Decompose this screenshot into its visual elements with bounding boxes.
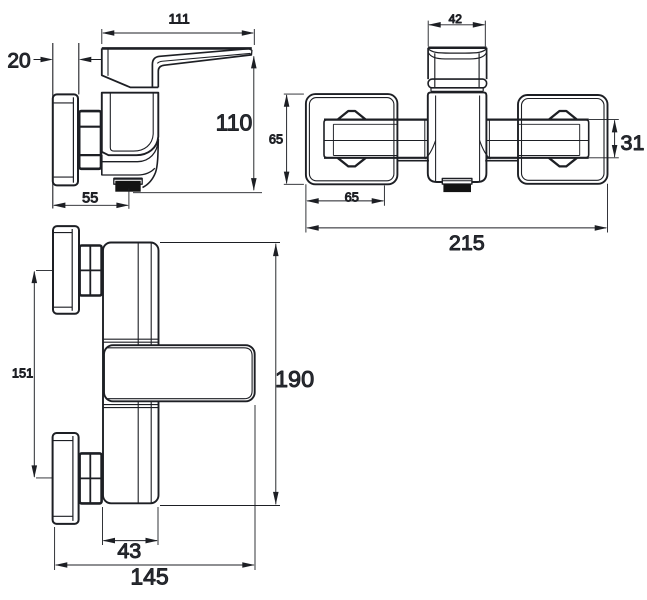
svg-text:43: 43 xyxy=(117,539,141,563)
svg-text:190: 190 xyxy=(275,366,314,392)
svg-text:151: 151 xyxy=(12,365,33,380)
svg-text:65: 65 xyxy=(345,189,359,204)
svg-text:215: 215 xyxy=(449,231,485,255)
svg-text:31: 31 xyxy=(621,131,645,155)
svg-text:65: 65 xyxy=(269,132,283,147)
svg-text:55: 55 xyxy=(82,191,98,207)
svg-text:111: 111 xyxy=(169,10,190,26)
svg-text:42: 42 xyxy=(449,12,463,26)
svg-text:145: 145 xyxy=(130,564,168,590)
svg-text:110: 110 xyxy=(216,110,253,136)
svg-text:20: 20 xyxy=(7,49,30,72)
